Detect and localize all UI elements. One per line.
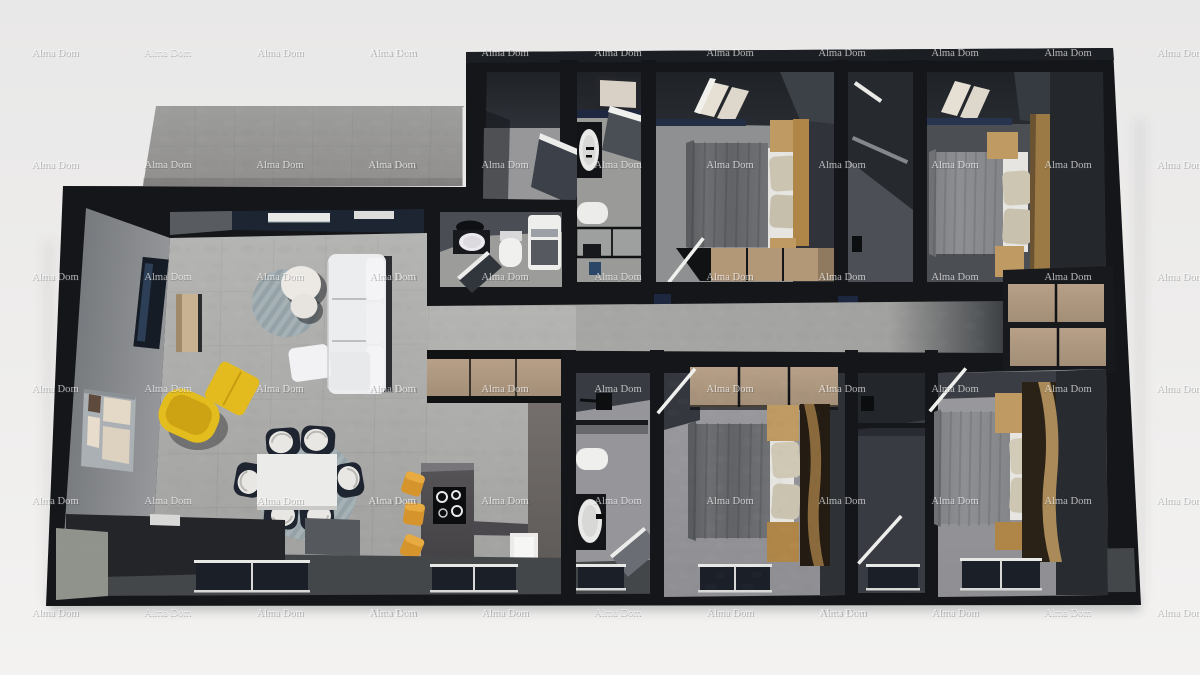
- svg-text:Alma Dom: Alma Dom: [818, 48, 866, 59]
- svg-text:Alma Dom: Alma Dom: [31, 496, 79, 507]
- svg-text:Alma Dom: Alma Dom: [1156, 608, 1200, 619]
- svg-text:Alma Dom: Alma Dom: [481, 48, 529, 59]
- svg-text:Alma Dom: Alma Dom: [1044, 272, 1092, 283]
- svg-text:Alma Dom: Alma Dom: [368, 160, 416, 171]
- svg-text:Alma Dom: Alma Dom: [31, 48, 79, 59]
- svg-text:Alma Dom: Alma Dom: [31, 608, 79, 619]
- svg-text:Alma Dom: Alma Dom: [818, 160, 866, 171]
- svg-text:Alma Dom: Alma Dom: [31, 272, 79, 283]
- svg-text:Alma Dom: Alma Dom: [481, 608, 529, 619]
- svg-text:Alma Dom: Alma Dom: [594, 272, 642, 283]
- svg-text:Alma Dom: Alma Dom: [1044, 608, 1092, 619]
- svg-text:Alma Dom: Alma Dom: [1044, 384, 1092, 395]
- svg-text:Alma Dom: Alma Dom: [256, 384, 304, 395]
- svg-text:Alma Dom: Alma Dom: [594, 48, 642, 59]
- svg-text:Alma Dom: Alma Dom: [706, 608, 754, 619]
- svg-text:Alma Dom: Alma Dom: [818, 272, 866, 283]
- svg-text:Alma Dom: Alma Dom: [931, 272, 979, 283]
- svg-text:Alma Dom: Alma Dom: [144, 608, 192, 619]
- svg-text:Alma Dom: Alma Dom: [1156, 384, 1200, 395]
- svg-text:Alma Dom: Alma Dom: [144, 48, 192, 59]
- svg-text:Alma Dom: Alma Dom: [818, 608, 866, 619]
- svg-text:Alma Dom: Alma Dom: [481, 272, 529, 283]
- svg-text:Alma Dom: Alma Dom: [1044, 496, 1092, 507]
- svg-text:Alma Dom: Alma Dom: [931, 48, 979, 59]
- svg-text:Alma Dom: Alma Dom: [1044, 48, 1092, 59]
- svg-text:Alma Dom: Alma Dom: [144, 384, 192, 395]
- svg-text:Alma Dom: Alma Dom: [256, 608, 304, 619]
- svg-text:Alma Dom: Alma Dom: [481, 160, 529, 171]
- svg-text:Alma Dom: Alma Dom: [706, 48, 754, 59]
- svg-text:Alma Dom: Alma Dom: [1156, 496, 1200, 507]
- svg-text:Alma Dom: Alma Dom: [256, 272, 304, 283]
- svg-text:Alma Dom: Alma Dom: [368, 272, 416, 283]
- svg-text:Alma Dom: Alma Dom: [1156, 160, 1200, 171]
- svg-text:Alma Dom: Alma Dom: [594, 496, 642, 507]
- svg-text:Alma Dom: Alma Dom: [256, 48, 304, 59]
- svg-text:Alma Dom: Alma Dom: [931, 608, 979, 619]
- svg-text:Alma Dom: Alma Dom: [256, 496, 304, 507]
- svg-text:Alma Dom: Alma Dom: [256, 160, 304, 171]
- svg-text:Alma Dom: Alma Dom: [706, 384, 754, 395]
- svg-text:Alma Dom: Alma Dom: [1044, 160, 1092, 171]
- svg-text:Alma Dom: Alma Dom: [368, 48, 416, 59]
- svg-text:Alma Dom: Alma Dom: [706, 272, 754, 283]
- svg-text:Alma Dom: Alma Dom: [144, 496, 192, 507]
- svg-text:Alma Dom: Alma Dom: [931, 160, 979, 171]
- svg-text:Alma Dom: Alma Dom: [1156, 272, 1200, 283]
- svg-text:Alma Dom: Alma Dom: [594, 608, 642, 619]
- svg-text:Alma Dom: Alma Dom: [818, 496, 866, 507]
- svg-text:Alma Dom: Alma Dom: [818, 384, 866, 395]
- svg-text:Alma Dom: Alma Dom: [368, 496, 416, 507]
- svg-text:Alma Dom: Alma Dom: [594, 384, 642, 395]
- svg-text:Alma Dom: Alma Dom: [594, 160, 642, 171]
- svg-text:Alma Dom: Alma Dom: [1156, 48, 1200, 59]
- svg-text:Alma Dom: Alma Dom: [481, 384, 529, 395]
- svg-text:Alma Dom: Alma Dom: [481, 496, 529, 507]
- svg-text:Alma Dom: Alma Dom: [706, 160, 754, 171]
- svg-text:Alma Dom: Alma Dom: [931, 384, 979, 395]
- svg-text:Alma Dom: Alma Dom: [144, 272, 192, 283]
- svg-text:Alma Dom: Alma Dom: [368, 608, 416, 619]
- svg-text:Alma Dom: Alma Dom: [31, 384, 79, 395]
- svg-text:Alma Dom: Alma Dom: [368, 384, 416, 395]
- svg-text:Alma Dom: Alma Dom: [144, 160, 192, 171]
- svg-text:Alma Dom: Alma Dom: [31, 160, 79, 171]
- svg-text:Alma Dom: Alma Dom: [706, 496, 754, 507]
- svg-text:Alma Dom: Alma Dom: [931, 496, 979, 507]
